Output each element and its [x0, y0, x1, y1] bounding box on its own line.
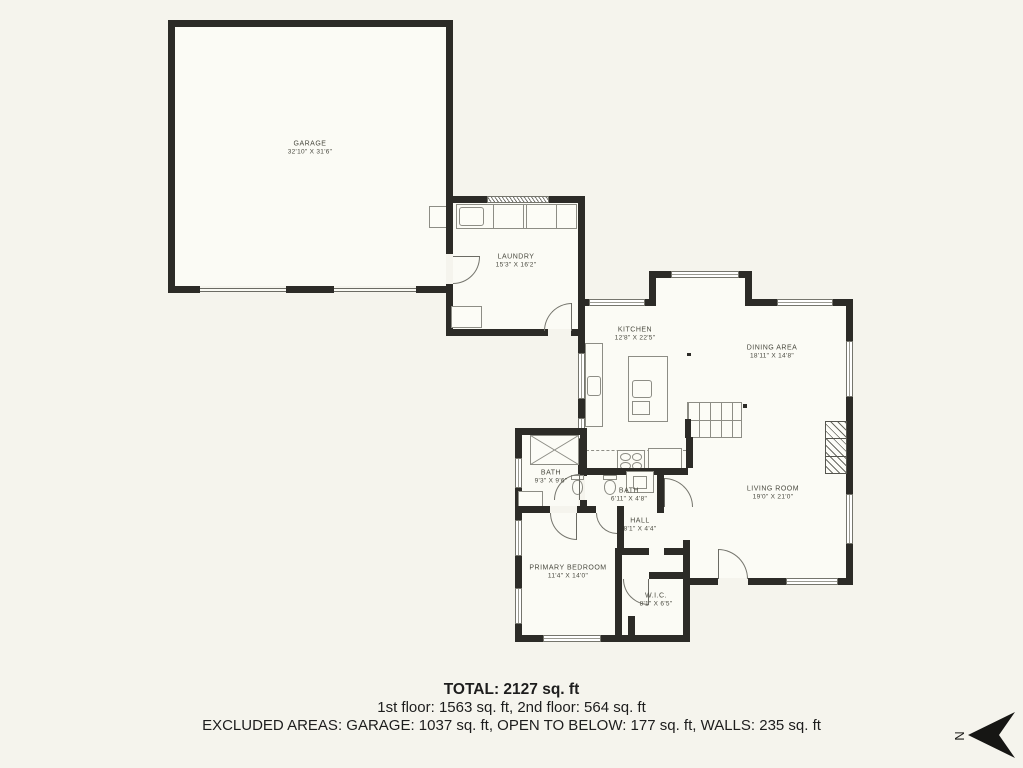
living-bottom-window [786, 578, 838, 585]
room-dims: 12'8" X 22'5" [615, 335, 656, 342]
wall-segment [846, 474, 853, 494]
room-label-primary-bedroom: PRIMARY BEDROOM 11'4" X 14'0" [529, 565, 606, 580]
wall-segment [515, 556, 522, 588]
room-label-living: LIVING ROOM 19'0" X 21'0" [747, 486, 799, 501]
bath1-window [515, 458, 522, 488]
wall-segment [846, 421, 853, 474]
wall-segment [577, 506, 596, 513]
floor-areas-text: 1st floor: 1563 sq. ft, 2nd floor: 564 s… [0, 699, 1023, 717]
kitchen-left-window [578, 353, 585, 399]
dining-window [777, 299, 833, 306]
wall-segment [515, 428, 585, 435]
room-dims: 15'3" X 16'2" [496, 262, 537, 269]
column-mark [687, 353, 691, 356]
wall-segment [649, 271, 671, 278]
door-leaf [453, 256, 480, 257]
wall-segment [683, 540, 690, 642]
wall-segment [446, 196, 453, 254]
wall-segment [688, 578, 718, 585]
wall-segment [515, 506, 522, 520]
room-label-kitchen: KITCHEN 12'8" X 22'5" [615, 327, 656, 342]
room-label-garage: GARAGE 32'10" X 31'6" [288, 141, 333, 156]
room-label-bath2: BATH 6'11" X 4'8" [611, 488, 647, 503]
room-dims: 9'3" X 9'6" [535, 478, 568, 485]
laundry-sink [459, 207, 484, 226]
shower-icon [530, 435, 579, 465]
wall-segment [446, 20, 453, 196]
bedroom-window-left2 [515, 588, 522, 624]
room-name: W.I.C. [640, 593, 673, 600]
wall-segment [838, 578, 853, 585]
area-summary: TOTAL: 2127 sq. ft 1st floor: 1563 sq. f… [0, 681, 1023, 735]
room-bay [656, 278, 745, 306]
room-label-bath1: BATH 9'3" X 9'6" [535, 470, 568, 485]
wall-segment [578, 196, 585, 306]
room-label-hall: HALL 8'1" X 4'4" [624, 518, 657, 533]
room-garage [175, 27, 446, 286]
wall-segment [168, 20, 175, 293]
garage-door-line [200, 288, 286, 292]
north-arrowhead-icon [968, 712, 1015, 758]
compass-letter: N [952, 731, 967, 740]
stairs [687, 402, 742, 438]
wall-segment [601, 635, 690, 642]
room-name: PRIMARY BEDROOM [529, 565, 606, 572]
room-name: BATH [535, 470, 568, 477]
room-dims: 8'1" X 4'4" [624, 526, 657, 533]
dryer [526, 204, 557, 229]
compass-north-arrow: N [935, 700, 1020, 765]
wall-segment [580, 428, 587, 476]
wall-segment [686, 437, 693, 468]
dining-side-window [846, 341, 853, 397]
wall-segment [578, 399, 585, 418]
kitchen-sink [587, 376, 601, 396]
room-name: BATH [611, 488, 647, 495]
stair-rail [685, 419, 691, 438]
room-dims: 18'11" X 14'8" [747, 353, 798, 360]
island-sink [632, 401, 650, 415]
room-dims: 8'1" X 6'5" [640, 601, 673, 608]
wall-segment [515, 428, 522, 458]
wall-segment [745, 299, 777, 306]
wall-segment [657, 468, 664, 513]
laundry-closet [451, 306, 482, 328]
wall-segment [649, 572, 690, 579]
wall-segment [846, 397, 853, 422]
room-name: KITCHEN [615, 327, 656, 334]
door-leaf [576, 513, 577, 540]
door-leaf [718, 549, 719, 579]
bedroom-window-left1 [515, 520, 522, 556]
garage-door-line [334, 288, 416, 292]
wall-segment [846, 299, 853, 341]
wall-segment [748, 578, 786, 585]
room-dims: 11'4" X 14'0" [529, 573, 606, 580]
wall-segment [286, 286, 334, 293]
fireplace [825, 421, 847, 474]
wall-segment [168, 20, 453, 27]
wall-segment [515, 635, 543, 642]
room-dims: 6'11" X 4'8" [611, 496, 647, 503]
door-leaf [579, 474, 580, 500]
bedroom-bottom-window [543, 635, 601, 642]
bay-window [671, 271, 739, 278]
door-leaf [571, 303, 572, 331]
room-name: LIVING ROOM [747, 486, 799, 493]
room-name: GARAGE [288, 141, 333, 148]
wall-segment [578, 299, 585, 353]
door-leaf [664, 478, 665, 507]
wall-segment [446, 329, 548, 336]
washer [493, 204, 524, 229]
living-side-window [846, 494, 853, 544]
wall-segment [168, 286, 200, 293]
room-name: HALL [624, 518, 657, 525]
room-label-laundry: LAUNDRY 15'3" X 16'2" [496, 254, 537, 269]
laundry-window [487, 196, 549, 203]
kitchen-window [589, 299, 645, 306]
room-dims: 32'10" X 31'6" [288, 149, 333, 156]
island-cooktop [632, 380, 652, 398]
wall-segment [664, 548, 685, 555]
total-area-text: TOTAL: 2127 sq. ft [0, 681, 1023, 699]
excluded-areas-text: EXCLUDED AREAS: GARAGE: 1037 sq. ft, OPE… [0, 717, 1023, 735]
room-label-wic: W.I.C. 8'1" X 6'5" [640, 593, 673, 608]
wall-segment [615, 548, 622, 642]
room-label-dining: DINING AREA 18'11" X 14'8" [747, 345, 798, 360]
stair-mark [743, 404, 747, 408]
room-name: LAUNDRY [496, 254, 537, 261]
room-name: DINING AREA [747, 345, 798, 352]
room-dims: 19'0" X 21'0" [747, 494, 799, 501]
floor-plan: GARAGE 32'10" X 31'6" LAUNDRY 15'3" X 16… [0, 0, 1023, 768]
